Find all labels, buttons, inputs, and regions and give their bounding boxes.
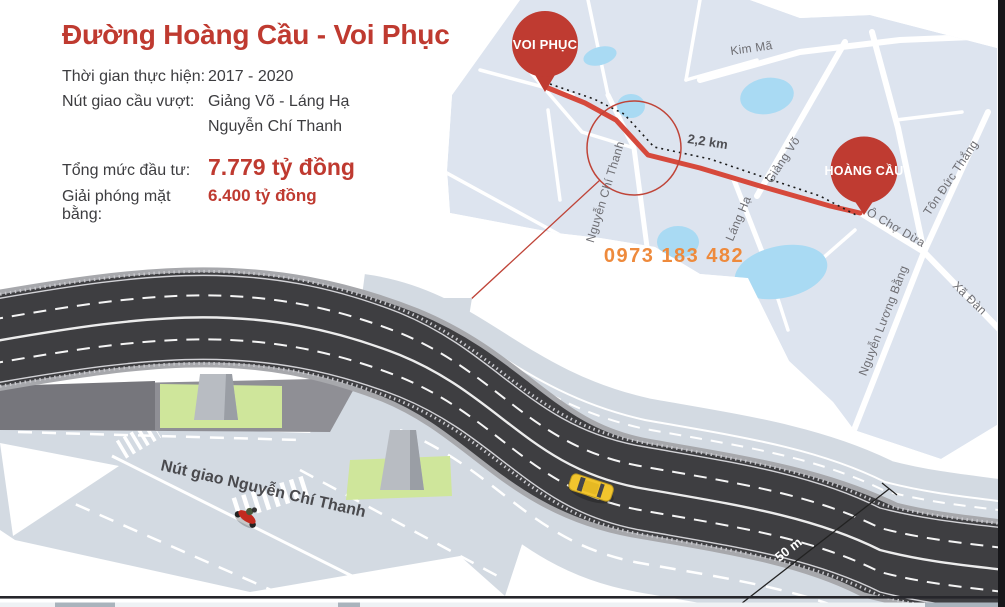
info-value: Nguyễn Chí Thanh: [208, 114, 462, 139]
investment-row: Tổng mức đầu tư: 7.779 tỷ đồng: [62, 152, 462, 182]
header-block: Đường Hoàng Cầu - Voi Phục Thời gian thự…: [62, 18, 462, 224]
info-rows: Thời gian thực hiện: 2017 - 2020 Nút gia…: [62, 64, 462, 139]
info-label: Nút giao cầu vượt:: [62, 89, 208, 114]
bottom-strip: [0, 603, 1005, 607]
info-value: Giảng Võ - Láng Hạ: [208, 89, 462, 114]
clearance-value: 6.400 tỷ đồng: [208, 183, 462, 209]
bottom-frame-line: [0, 596, 1005, 599]
phone-number: 0973 183 482: [604, 245, 744, 267]
pin-hoang-cau-label: HOÀNG CẦU: [825, 163, 904, 178]
investment-value: 7.779 tỷ đồng: [208, 152, 462, 182]
bottom-strip-segment: [925, 603, 1005, 607]
right-frame-strip: [998, 0, 1005, 607]
info-label: Thời gian thực hiện:: [62, 64, 208, 89]
clearance-label: Giải phóng mặt bằng:: [62, 188, 208, 224]
infographic: Kim Mã Giảng Võ Láng Hạ Nguyễn Chí Thanh…: [0, 0, 1005, 607]
clearance-row: Giải phóng mặt bằng: 6.400 tỷ đồng: [62, 183, 462, 224]
bridge-abutment-wall: [0, 381, 155, 430]
investment-label: Tổng mức đầu tư:: [62, 162, 208, 180]
bottom-strip-segment: [55, 603, 115, 607]
page-title: Đường Hoàng Cầu - Voi Phục: [62, 18, 462, 52]
info-label: [62, 114, 208, 139]
pin-voi-phuc-label: VOI PHỤC: [513, 37, 578, 52]
info-value: 2017 - 2020: [208, 64, 462, 89]
bottom-strip-segment: [338, 603, 360, 607]
